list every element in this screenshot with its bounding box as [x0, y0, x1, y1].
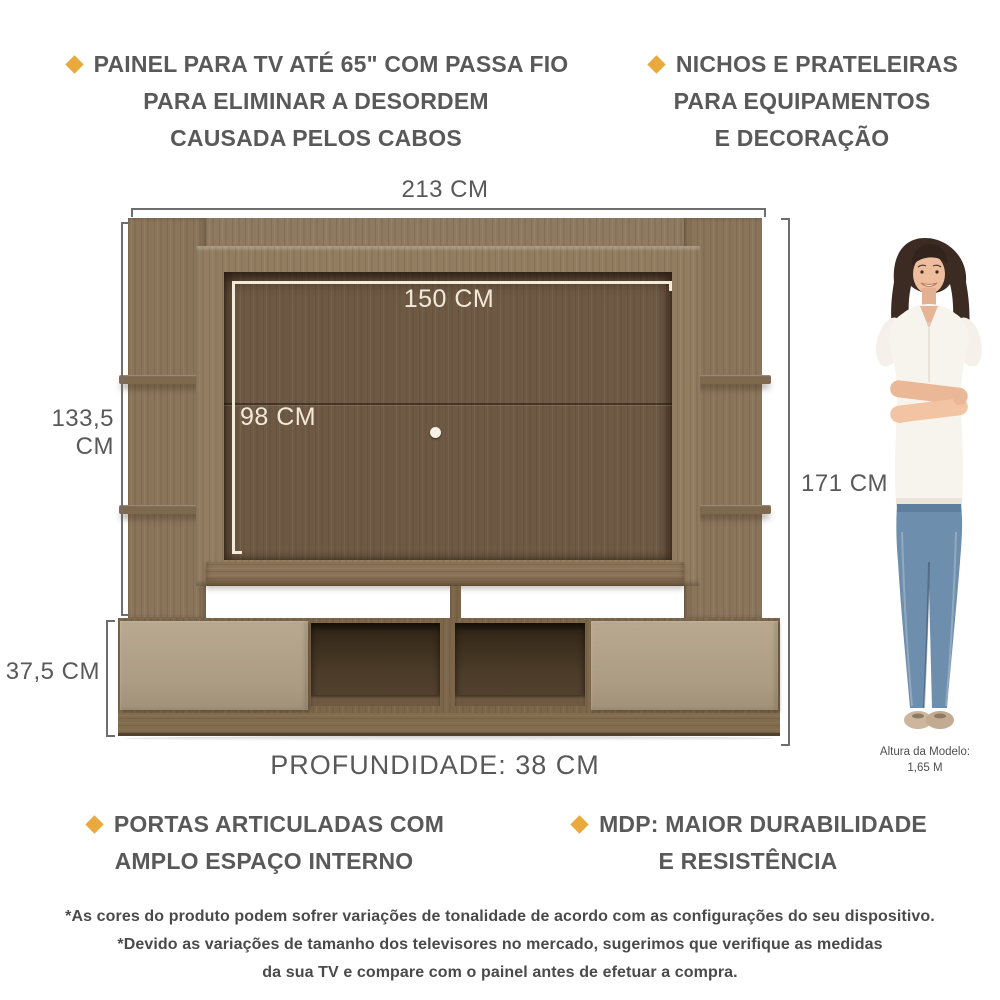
cabinet-left-door — [120, 621, 308, 710]
product-infographic: PAINEL PARA TV ATÉ 65" COM PASSA FIO PAR… — [0, 0, 1000, 1000]
dimension-line-total-width — [131, 208, 766, 217]
diamond-bullet-icon — [570, 816, 588, 834]
feature-bottom-right: MDP: MAIOR DURABILIDADE E RESISTÊNCIA — [518, 806, 978, 880]
left-shelf-bottom — [119, 505, 208, 514]
panel-bottom-shelf — [206, 562, 684, 586]
feature-text: PARA ELIMINAR A DESORDEM — [20, 83, 612, 120]
feature-bottom-left: PORTAS ARTICULADAS COM AMPLO ESPAÇO INTE… — [38, 806, 490, 880]
dimension-line-cabinet-height — [106, 620, 115, 737]
feature-text: E RESISTÊNCIA — [518, 843, 978, 880]
cable-pass-hole — [430, 427, 441, 438]
model-photo — [850, 232, 1000, 742]
disclaimer-line-3: da sua TV e compare com o painel antes d… — [0, 959, 1000, 987]
model-caption-line: 1,65 M — [850, 760, 1000, 776]
left-shelf-top — [119, 375, 208, 384]
gap-center-divider — [450, 586, 461, 619]
lower-cabinet — [118, 618, 780, 713]
disclaimer: *As cores do produto podem sofrer variaç… — [0, 903, 1000, 987]
dimension-label-inner-height: 98 CM — [240, 403, 316, 432]
cabinet-right-door — [591, 621, 778, 710]
cabinet-open-niche-1 — [311, 623, 440, 706]
diamond-bullet-icon — [647, 56, 665, 74]
disclaimer-line-1: *As cores do produto podem sofrer variaç… — [0, 903, 1000, 931]
feature-text: PORTAS ARTICULADAS COM — [114, 811, 444, 837]
dimension-label-cabinet-height: 37,5 CM — [4, 658, 100, 686]
model-caption-line: Altura da Modelo: — [850, 744, 1000, 760]
tv-panel-recessed: 150 CM 98 CM — [224, 272, 672, 560]
feature-text: E DECORAÇÃO — [612, 120, 992, 157]
dimension-label-total-width: 213 CM — [128, 176, 762, 204]
floor-shadow — [124, 736, 774, 741]
cabinet-open-niche-2 — [455, 623, 585, 706]
dimension-line-total-height — [781, 218, 790, 746]
feature-line: PAINEL PARA TV ATÉ 65" COM PASSA FIO — [20, 46, 612, 83]
feature-top-left: PAINEL PARA TV ATÉ 65" COM PASSA FIO PAR… — [20, 46, 612, 157]
feature-line: NICHOS E PRATELEIRAS — [612, 46, 992, 83]
dimension-label-inner-width: 150 CM — [354, 285, 544, 314]
feature-text: MDP: MAIOR DURABILIDADE — [599, 811, 927, 837]
feature-top-right: NICHOS E PRATELEIRAS PARA EQUIPAMENTOS E… — [612, 46, 992, 157]
feature-text: CAUSADA PELOS CABOS — [20, 120, 612, 157]
niche-shelf-lip — [311, 695, 440, 706]
feature-text: PARA EQUIPAMENTOS — [612, 83, 992, 120]
diamond-bullet-icon — [65, 56, 83, 74]
furniture-left-column — [128, 218, 206, 618]
diamond-bullet-icon — [85, 816, 103, 834]
cabinet-plinth — [118, 713, 780, 736]
feature-text: PAINEL PARA TV ATÉ 65" COM PASSA FIO — [94, 51, 569, 77]
model-caption: Altura da Modelo: 1,65 M — [850, 744, 1000, 776]
feature-text: NICHOS E PRATELEIRAS — [676, 51, 958, 77]
disclaimer-line-2: *Devido as variações de tamanho dos tele… — [0, 931, 1000, 959]
feature-text: AMPLO ESPAÇO INTERNO — [38, 843, 490, 880]
dimension-label-depth: PROFUNDIDADE: 38 CM — [110, 750, 760, 781]
feature-line: MDP: MAIOR DURABILIDADE — [518, 806, 978, 843]
dimension-label-panel-height: 133,5 CM — [6, 405, 114, 461]
niche-shelf-lip — [455, 695, 585, 706]
dimension-line-panel-height — [121, 222, 130, 616]
feature-line: PORTAS ARTICULADAS COM — [38, 806, 490, 843]
